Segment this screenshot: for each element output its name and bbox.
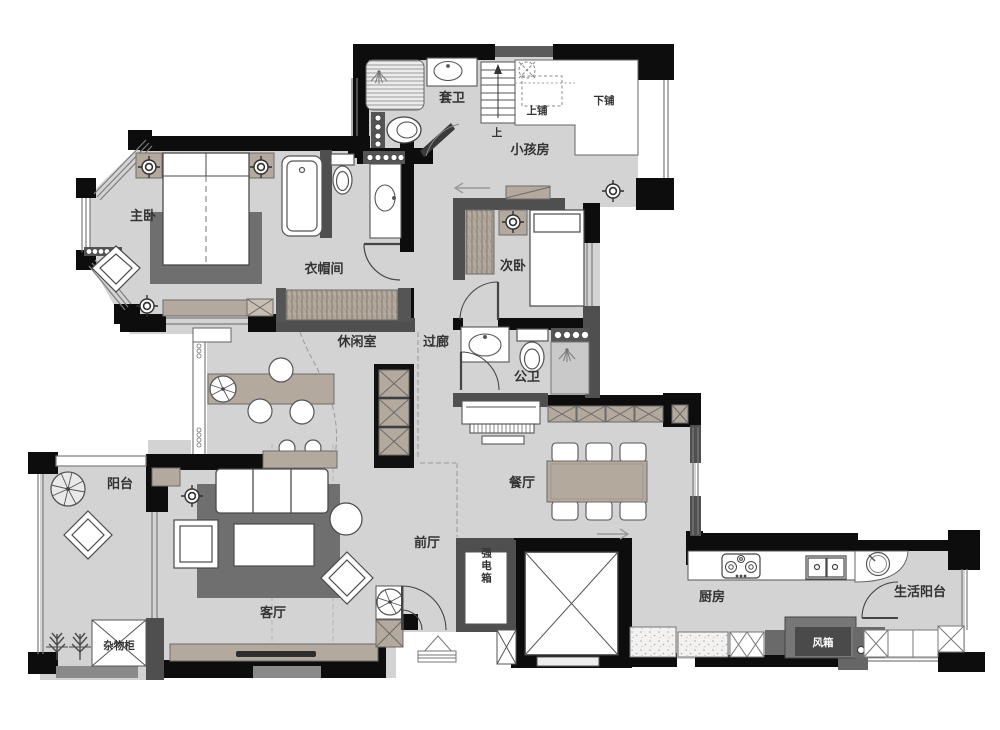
double-sink (806, 556, 846, 579)
gas-stove (722, 554, 760, 578)
elevator (525, 552, 618, 666)
room-label-dining: 餐厅 (508, 475, 535, 490)
fan-box: 风箱 (785, 617, 856, 658)
wash-basin (370, 164, 401, 238)
base-counters (630, 627, 785, 657)
label-lower-bunk: 下铺 (594, 94, 615, 107)
label-storage-cabinet: 杂物柜 (103, 639, 135, 652)
x-box (497, 630, 516, 664)
fan-icon (377, 589, 403, 615)
wardrobe (276, 288, 411, 322)
round-side-table (330, 503, 362, 535)
label-upper-bunk: 上铺 (527, 104, 548, 117)
room-label-utility-balcony: 生活阳台 (894, 584, 946, 599)
bathtub (282, 156, 322, 236)
tv (236, 651, 316, 657)
elevator-sill (537, 657, 599, 666)
x-cabinet (247, 299, 273, 316)
room-label-foyer: 前厅 (414, 535, 440, 550)
window-bench (163, 300, 247, 316)
room-label-balcony: 阳台 (107, 476, 133, 491)
dining-table (547, 461, 647, 502)
side-cabinet (152, 468, 180, 486)
tall-cabinet (374, 364, 414, 468)
label-fan-box: 风箱 (813, 636, 834, 649)
single-bed (530, 210, 584, 306)
room-label-corridor: 过廊 (423, 334, 449, 349)
vanity-light-dots (367, 155, 404, 161)
shower-tray (366, 60, 424, 110)
sofa (216, 469, 328, 513)
cabinets (864, 626, 964, 657)
floor-plan-svg: 主卧 衣帽间 (0, 0, 1000, 730)
floor-plan-page: 主卧 衣帽间 (0, 0, 1000, 730)
room-label-master-bedroom: 主卧 (130, 208, 156, 223)
coffee-table (234, 524, 314, 566)
room-label-kitchen: 厨房 (699, 589, 725, 604)
label-power-box: 强电箱 (480, 547, 492, 585)
table-fan-icon (210, 376, 236, 402)
sofa-back-cabinet (263, 451, 337, 468)
ensuite-basin (427, 58, 477, 86)
armchair (174, 520, 218, 568)
wardrobe (466, 210, 494, 274)
room-label-cloakroom: 衣帽间 (304, 261, 343, 276)
shower-floor (551, 342, 589, 394)
power-box: 强电箱 (456, 540, 516, 664)
room-label-second-bedroom: 次卧 (500, 258, 526, 273)
stairs (481, 62, 515, 123)
basin (461, 327, 509, 362)
room-label-kids: 小孩房 (510, 142, 549, 157)
room-label-public-bath: 公卫 (514, 369, 540, 384)
room-label-lounge: 休闲室 (336, 334, 376, 349)
room-label-living: 客厅 (260, 605, 286, 620)
label-up: 上 (492, 126, 503, 139)
room-label-ensuite-bath: 套卫 (438, 90, 465, 105)
balcony-fan (51, 472, 85, 506)
foyer-cabinet (376, 586, 403, 647)
toilet (331, 154, 354, 194)
low-cabinet (193, 328, 231, 342)
